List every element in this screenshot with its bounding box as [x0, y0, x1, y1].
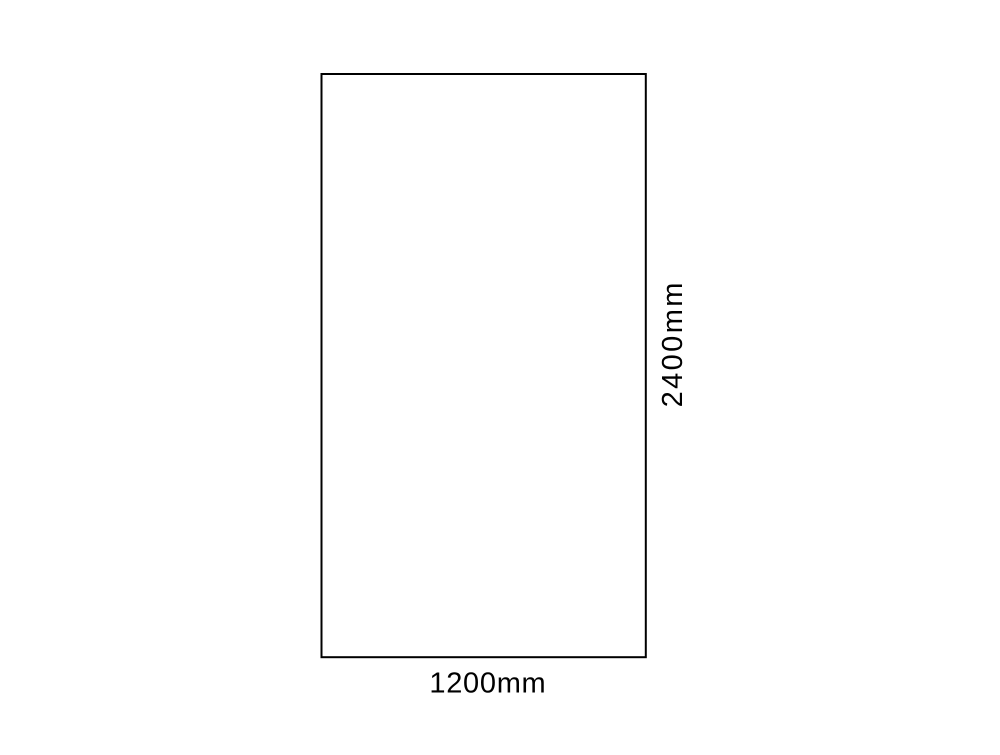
svg-text:2400mm: 2400mm	[657, 280, 689, 407]
svg-text:1200mm: 1200mm	[429, 667, 546, 699]
